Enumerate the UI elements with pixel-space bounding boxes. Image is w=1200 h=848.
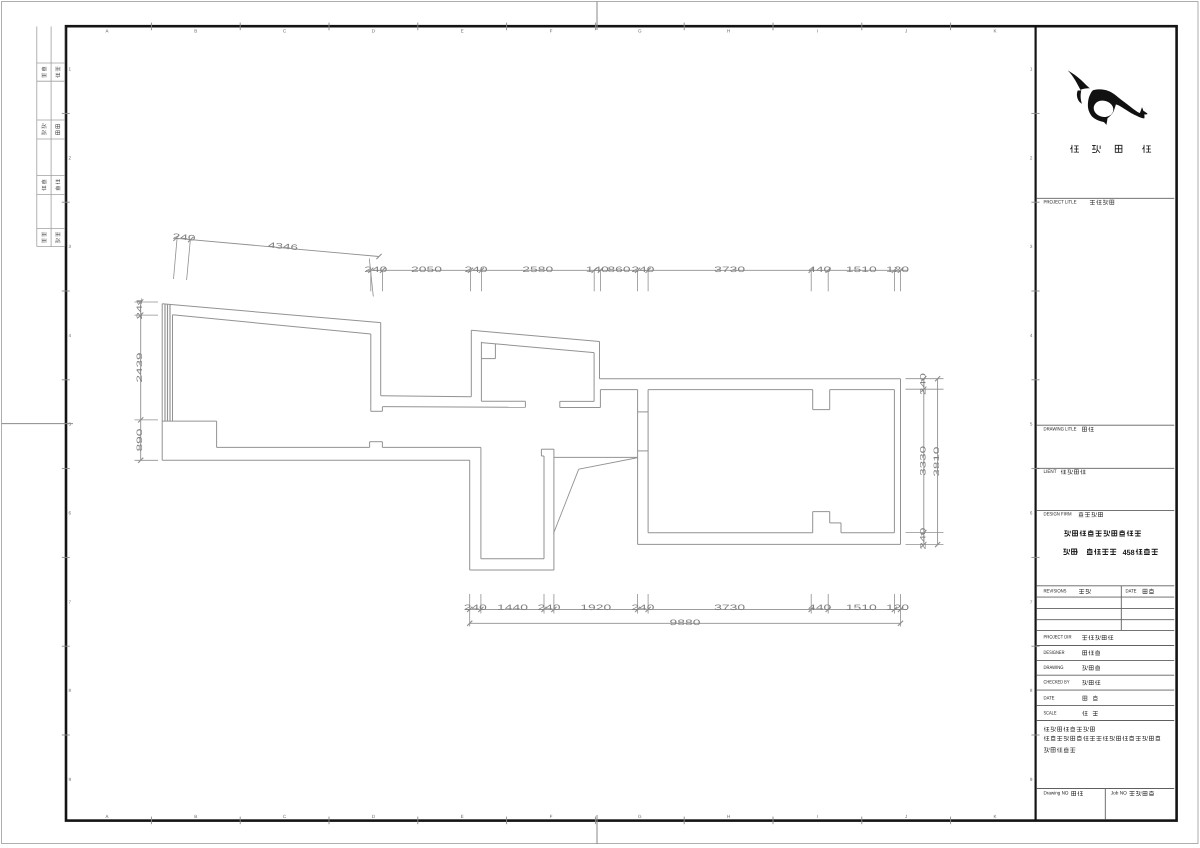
svg-text:F: F bbox=[550, 28, 553, 33]
svg-text:I: I bbox=[817, 28, 818, 33]
svg-text:8: 8 bbox=[69, 688, 72, 693]
svg-text:DRAWING: DRAWING bbox=[1044, 665, 1064, 671]
svg-text:Job NO: Job NO bbox=[1111, 791, 1127, 797]
svg-text:4: 4 bbox=[1030, 333, 1033, 338]
svg-text:REVISIONS: REVISIONS bbox=[1044, 588, 1068, 594]
svg-text:440: 440 bbox=[808, 603, 832, 612]
svg-text:240: 240 bbox=[918, 526, 927, 549]
svg-text:LIENT: LIENT bbox=[1044, 469, 1057, 475]
svg-text:B: B bbox=[194, 814, 197, 819]
svg-text:9880: 9880 bbox=[670, 618, 702, 627]
svg-text:458: 458 bbox=[1123, 548, 1135, 557]
svg-text:240: 240 bbox=[464, 603, 488, 612]
svg-text:PROJECT DIR: PROJECT DIR bbox=[1044, 635, 1072, 641]
svg-text:DESIGN FIRM: DESIGN FIRM bbox=[1044, 512, 1072, 518]
svg-text:3: 3 bbox=[1030, 244, 1033, 249]
svg-text:9: 9 bbox=[69, 777, 72, 782]
svg-text:890: 890 bbox=[135, 427, 144, 451]
svg-text:1510: 1510 bbox=[846, 265, 878, 274]
svg-text:CHECKED BY: CHECKED BY bbox=[1044, 680, 1071, 686]
svg-text:2439: 2439 bbox=[135, 353, 144, 383]
svg-text:Drawing NO: Drawing NO bbox=[1044, 791, 1069, 797]
svg-text:3730: 3730 bbox=[714, 265, 746, 274]
svg-text:J: J bbox=[905, 814, 907, 819]
svg-text:SCALE: SCALE bbox=[1044, 710, 1058, 716]
svg-text:240: 240 bbox=[364, 265, 388, 274]
svg-text:860: 860 bbox=[608, 265, 632, 274]
svg-text:DATE: DATE bbox=[1044, 695, 1056, 701]
svg-text:240: 240 bbox=[918, 372, 927, 395]
svg-text:7: 7 bbox=[1030, 599, 1033, 604]
svg-text:DRAWING LITLE: DRAWING LITLE bbox=[1044, 426, 1078, 432]
svg-text:140: 140 bbox=[586, 265, 610, 274]
svg-text:2: 2 bbox=[1030, 155, 1033, 160]
svg-text:7: 7 bbox=[69, 599, 72, 604]
svg-text:240: 240 bbox=[538, 603, 562, 612]
svg-text:120: 120 bbox=[886, 603, 910, 612]
svg-text:2580: 2580 bbox=[522, 265, 554, 274]
svg-text:3810: 3810 bbox=[932, 445, 941, 476]
svg-text:PROJECT LITLE: PROJECT LITLE bbox=[1044, 199, 1078, 205]
svg-text:1510: 1510 bbox=[846, 603, 878, 612]
svg-text:F: F bbox=[550, 814, 553, 819]
svg-text:E: E bbox=[461, 814, 464, 819]
svg-text:2050: 2050 bbox=[411, 265, 443, 274]
svg-text:1: 1 bbox=[69, 67, 72, 72]
svg-text:3730: 3730 bbox=[714, 603, 746, 612]
svg-text:8: 8 bbox=[1030, 688, 1033, 693]
svg-text:G: G bbox=[638, 814, 642, 819]
svg-text:DATE: DATE bbox=[1126, 588, 1138, 594]
svg-text:3: 3 bbox=[69, 244, 72, 249]
svg-text:1: 1 bbox=[1030, 67, 1033, 72]
svg-text:9: 9 bbox=[1030, 777, 1033, 782]
svg-text:120: 120 bbox=[886, 265, 910, 274]
svg-text:DESIGNER: DESIGNER bbox=[1044, 650, 1065, 656]
svg-text:240: 240 bbox=[631, 265, 655, 274]
svg-text:1440: 1440 bbox=[497, 603, 529, 612]
svg-text:5: 5 bbox=[1030, 422, 1033, 427]
svg-text:2: 2 bbox=[69, 155, 72, 160]
svg-text:4: 4 bbox=[69, 333, 72, 338]
svg-text:E: E bbox=[461, 28, 464, 33]
svg-text:J: J bbox=[905, 28, 907, 33]
svg-text:6: 6 bbox=[1030, 511, 1033, 516]
svg-text:241: 241 bbox=[135, 298, 144, 320]
svg-text:H: H bbox=[727, 814, 730, 819]
svg-text:5: 5 bbox=[69, 422, 72, 427]
svg-text:440: 440 bbox=[808, 265, 832, 274]
svg-text:G: G bbox=[638, 28, 642, 33]
svg-text:H: H bbox=[727, 28, 730, 33]
svg-text:240: 240 bbox=[465, 265, 489, 274]
svg-text:B: B bbox=[194, 28, 197, 33]
svg-text:3330: 3330 bbox=[918, 445, 927, 476]
svg-text:1920: 1920 bbox=[580, 603, 612, 612]
svg-text:240: 240 bbox=[631, 603, 655, 612]
svg-text:6: 6 bbox=[69, 511, 72, 516]
svg-text:I: I bbox=[817, 814, 818, 819]
